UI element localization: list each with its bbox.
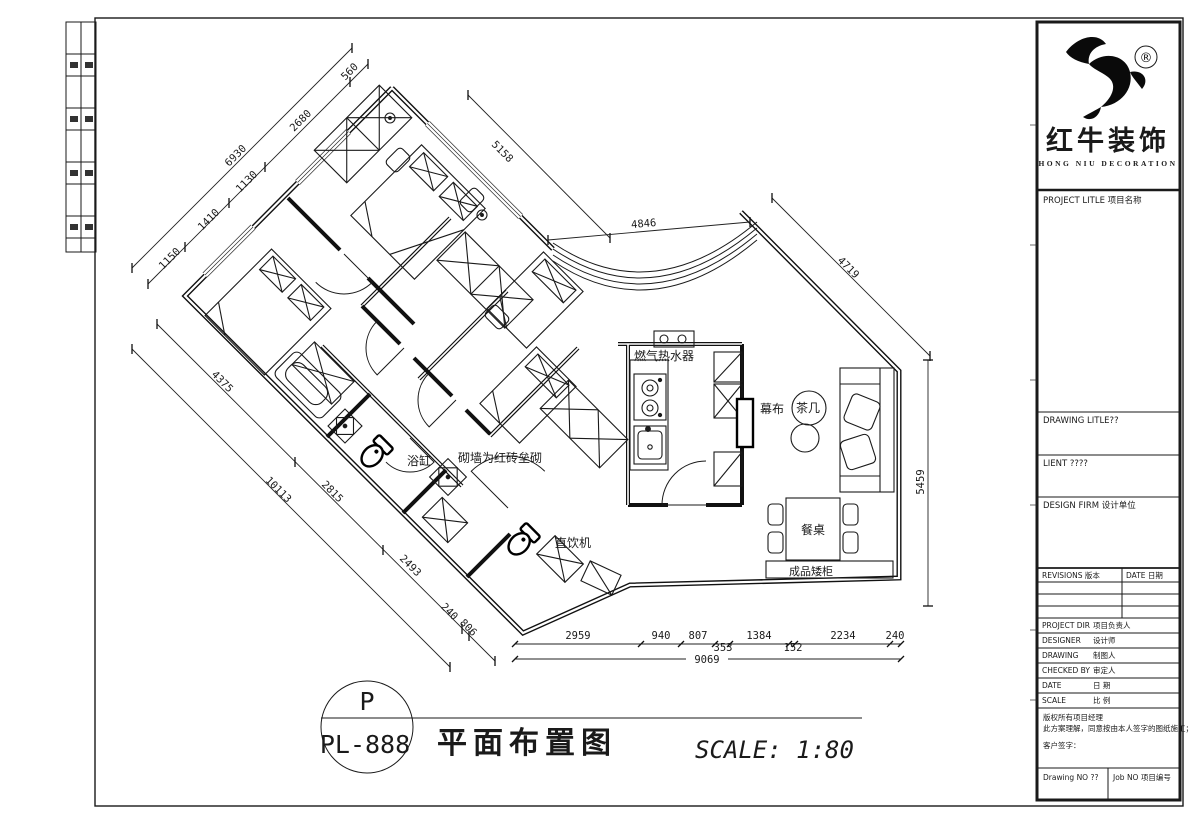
drawing-sheet: 燃气热水器 幕布 茶几 餐桌 成品矮柜 浴缸 砌墙为红砖垒砌 直饮机 560 2…	[0, 0, 1200, 824]
kitchen-counter	[630, 360, 668, 470]
designer-value: 设计师	[1093, 635, 1116, 645]
badge-code: PL-888	[320, 730, 410, 759]
brand-name-cn: 红牛装饰	[1046, 125, 1170, 157]
registered-mark: ®	[1140, 51, 1153, 66]
dim-6930: 6930	[223, 143, 249, 169]
dim-560: 560	[339, 61, 361, 83]
label-brick-note: 砌墙为红砖垒砌	[458, 450, 542, 465]
kitchen-stove	[634, 374, 666, 420]
note-line-3: 客户签字：	[1043, 740, 1081, 750]
dim-807: 807	[689, 630, 708, 642]
scale-label: SCALE	[1042, 696, 1066, 705]
dim-4719: 4719	[835, 255, 861, 281]
brick-posts	[422, 352, 742, 595]
dim-4846: 4846	[631, 217, 657, 231]
window-band-2	[201, 223, 256, 278]
bed-small-1	[487, 252, 583, 348]
logo-box: ® 红牛装饰 HONG NIU DECORATION	[1037, 37, 1180, 190]
dim-2815: 2815	[319, 479, 345, 505]
brand-name-en: HONG NIU DECORATION	[1038, 159, 1177, 168]
toilet-2	[504, 523, 541, 560]
room-labels: 燃气热水器 幕布 茶几 餐桌 成品矮柜 浴缸 砌墙为红砖垒砌 直饮机	[407, 348, 833, 578]
dim-2959: 2959	[565, 630, 590, 642]
sheet-frame	[95, 18, 1183, 806]
toilet-1	[357, 435, 394, 472]
job-no-label: Job NO 项目编号	[1112, 772, 1171, 782]
label-bathtub: 浴缸	[407, 453, 431, 468]
drawing-title-label: DRAWING LITLE??	[1043, 416, 1119, 426]
label-dining-table: 餐桌	[801, 522, 825, 537]
project-dir-label: PROJECT DIR	[1042, 621, 1090, 630]
dim-1410: 1410	[196, 207, 222, 233]
sheet-title: 平面布置图	[437, 726, 617, 761]
label-cabinet: 成品矮柜	[789, 564, 833, 578]
bed-left	[205, 249, 331, 375]
client-label: LIENT ????	[1043, 459, 1088, 469]
dim-2680: 2680	[288, 108, 314, 134]
register-strip	[66, 22, 96, 252]
badge-letter: P	[359, 687, 374, 716]
washbasin-1	[328, 409, 362, 443]
dim-2234: 2234	[830, 630, 855, 642]
project-dir-value: 项目负责人	[1093, 620, 1131, 630]
label-curtain: 幕布	[760, 402, 784, 416]
project-title-label: PROJECT LITLE 项目名称	[1043, 195, 1142, 206]
checked-by-label: CHECKED BY	[1042, 666, 1090, 675]
dim-1150: 1150	[157, 246, 183, 272]
notes-box: 版权所有项目经理 此方案理解，同意按由本人签字的图纸施工； 客户签字：	[1043, 712, 1193, 750]
design-firm-label: DESIGN FIRM 设计单位	[1043, 500, 1136, 511]
dim-240-bottom: 240	[886, 630, 905, 642]
dim-240-left: 240	[438, 601, 460, 623]
checked-by-value: 审定人	[1093, 665, 1116, 675]
revisions-table: REVISIONS 版本 DATE 日期	[1037, 568, 1180, 618]
dim-9069: 9069	[694, 654, 719, 666]
revisions-header: REVISIONS 版本	[1042, 570, 1100, 580]
kitchen-sink	[634, 426, 666, 464]
sofa	[839, 368, 894, 492]
label-tea-table: 茶几	[796, 400, 820, 415]
dim-5158: 5158	[489, 139, 515, 165]
sheet-footer: P PL-888 平面布置图 SCALE: 1:80	[320, 681, 862, 773]
label-water-dispenser: 直饮机	[555, 536, 591, 550]
dim-940: 940	[652, 630, 671, 642]
date-value: 日 期	[1093, 681, 1110, 690]
scale-value: 比 例	[1093, 695, 1110, 705]
dim-152: 152	[784, 642, 803, 654]
staff-rows: PROJECT DIR 项目负责人 DESIGNER 设计师 DRAWING 制…	[1037, 620, 1180, 708]
curved-window	[553, 222, 757, 290]
number-row: Drawing NO ?? Job NO 项目编号	[1037, 768, 1180, 800]
dim-5459: 5459	[915, 469, 927, 494]
dim-10113: 10113	[263, 474, 294, 505]
label-gas-heater: 燃气热水器	[634, 348, 694, 363]
projector-screen	[737, 399, 753, 447]
dim-2493: 2493	[397, 553, 423, 579]
plan-canvas: 燃气热水器 幕布 茶几 餐桌 成品矮柜 浴缸 砌墙为红砖垒砌 直饮机 560 2…	[0, 0, 1200, 824]
scale-note: SCALE: 1:80	[695, 736, 854, 764]
bull-logo-icon	[1066, 37, 1145, 119]
dim-806: 806	[457, 617, 479, 639]
window-band-1	[294, 128, 352, 186]
interior-walls	[288, 198, 742, 577]
date-label: DATE	[1042, 681, 1062, 690]
note-line-1: 版权所有项目经理	[1043, 712, 1103, 722]
date-column-header: DATE 日期	[1126, 571, 1163, 580]
drawing-no-label: Drawing NO ??	[1043, 773, 1098, 782]
note-line-2: 此方案理解，同意按由本人签字的图纸施工；	[1043, 723, 1193, 733]
designer-label: DESIGNER	[1042, 636, 1081, 645]
dim-1130: 1130	[234, 169, 260, 195]
dim-353: 353	[714, 642, 733, 654]
drawing-label: DRAWING	[1042, 651, 1079, 660]
drawing-value: 制图人	[1093, 650, 1116, 660]
dim-1384: 1384	[746, 630, 771, 642]
dim-4375: 4375	[209, 369, 235, 395]
bed-small-2	[480, 347, 576, 443]
title-block: ® 红牛装饰 HONG NIU DECORATION PROJECT LITLE…	[1037, 37, 1193, 800]
floor-plan: 燃气热水器 幕布 茶几 餐桌 成品矮柜 浴缸 砌墙为红砖垒砌 直饮机 560 2…	[132, 43, 933, 672]
